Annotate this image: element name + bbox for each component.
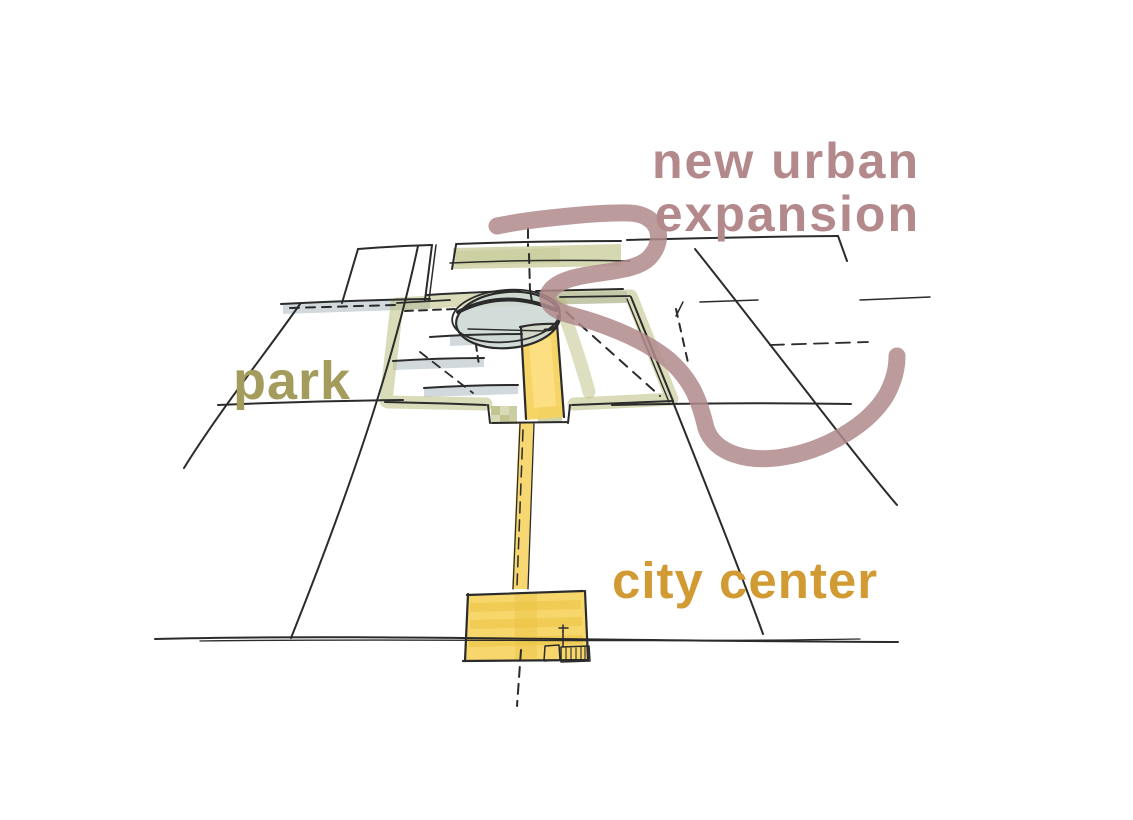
block-top-edge xyxy=(456,241,621,244)
tick xyxy=(676,302,683,316)
label-expansion: expansion xyxy=(655,186,920,242)
block-top-edge xyxy=(358,245,432,249)
axis-dashed-centerline xyxy=(529,254,530,290)
label-park: park xyxy=(233,351,351,411)
urban-concept-sketch: new urban expansion park city center xyxy=(0,0,1133,820)
block-edge xyxy=(425,245,432,300)
label-new-urban: new urban xyxy=(652,133,920,189)
park-outline-top xyxy=(560,296,630,297)
block-left-edge xyxy=(342,249,358,303)
yellow-axis xyxy=(464,323,587,661)
sketch-canvas: new urban expansion park city center xyxy=(0,0,1133,820)
street-line xyxy=(700,300,758,302)
street-line-right-long xyxy=(612,403,851,405)
street-diagonal-right xyxy=(695,249,897,505)
street-dashes xyxy=(770,342,868,345)
street-line xyxy=(860,297,930,300)
label-city-center: city center xyxy=(612,552,878,609)
